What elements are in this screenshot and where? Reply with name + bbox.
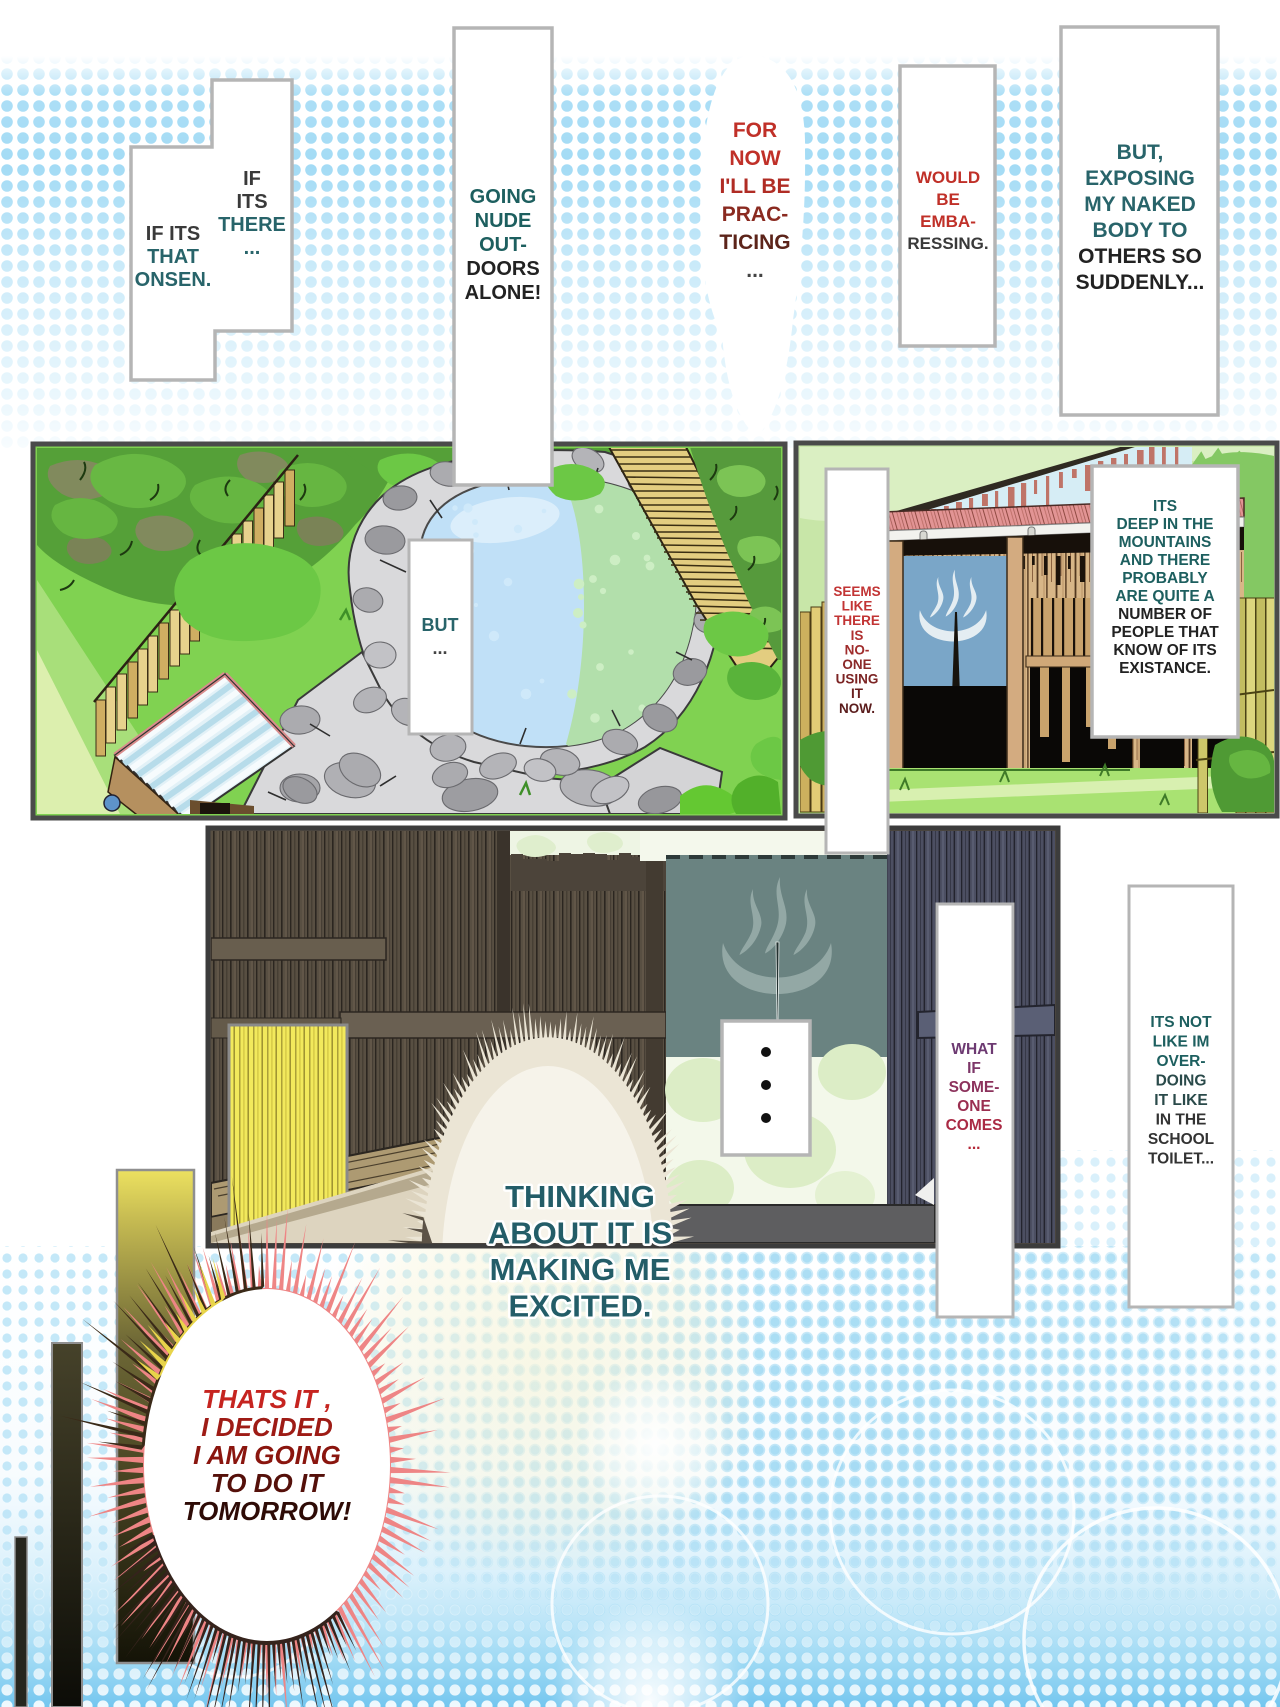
svg-text:LIKE IM: LIKE IM: [1153, 1034, 1210, 1051]
svg-text:...: ...: [244, 237, 261, 259]
svg-text:IN THE: IN THE: [1156, 1112, 1207, 1129]
svg-text:...: ...: [746, 259, 764, 282]
svg-text:ALONE!: ALONE!: [465, 282, 542, 304]
svg-text:...: ...: [432, 638, 447, 658]
svg-text:PRAC-: PRAC-: [722, 203, 789, 226]
svg-text:ONE: ONE: [957, 1098, 991, 1115]
svg-text:...: ...: [968, 1136, 981, 1153]
svg-text:TOILET...: TOILET...: [1148, 1151, 1214, 1168]
svg-text:THERE: THERE: [218, 214, 286, 236]
svg-text:BUT: BUT: [422, 615, 459, 635]
svg-text:THATS IT ,: THATS IT ,: [202, 1384, 332, 1414]
svg-text:THINKING: THINKING: [505, 1179, 655, 1214]
svg-text:LIKE: LIKE: [842, 599, 873, 614]
svg-text:WHAT: WHAT: [951, 1041, 997, 1058]
svg-text:NOW: NOW: [729, 147, 781, 170]
svg-text:GOING: GOING: [470, 186, 537, 208]
svg-text:AND THERE: AND THERE: [1120, 552, 1210, 569]
svg-text:PEOPLE THAT: PEOPLE THAT: [1111, 624, 1219, 641]
svg-text:FOR: FOR: [733, 119, 777, 142]
svg-text:IF: IF: [967, 1060, 981, 1077]
svg-text:ARE QUITE A: ARE QUITE A: [1115, 588, 1214, 605]
svg-text:I DECIDED: I DECIDED: [201, 1412, 333, 1442]
svg-text:ITS: ITS: [236, 191, 267, 213]
svg-text:EXCITED.: EXCITED.: [509, 1289, 652, 1324]
svg-text:OVER-: OVER-: [1156, 1053, 1205, 1070]
svg-text:DOORS: DOORS: [466, 258, 539, 280]
svg-text:BE: BE: [936, 190, 960, 209]
svg-text:THERE: THERE: [834, 613, 880, 628]
svg-text:I AM GOING: I AM GOING: [193, 1440, 341, 1470]
svg-text:ABOUT IT IS: ABOUT IT IS: [488, 1216, 672, 1251]
svg-text:IF: IF: [243, 168, 261, 190]
svg-text:OTHERS SO: OTHERS SO: [1078, 245, 1202, 268]
svg-text:IT: IT: [851, 686, 864, 701]
svg-text:BODY TO: BODY TO: [1093, 219, 1188, 242]
svg-text:ONE: ONE: [842, 657, 871, 672]
svg-text:TICING: TICING: [719, 231, 790, 254]
svg-text:COMES: COMES: [946, 1117, 1003, 1134]
svg-text:THAT: THAT: [147, 246, 199, 268]
svg-text:SUDDENLY...: SUDDENLY...: [1076, 271, 1205, 294]
svg-text:TOMORROW!: TOMORROW!: [183, 1496, 352, 1526]
svg-text:EXISTANCE.: EXISTANCE.: [1119, 660, 1211, 677]
svg-text:DOING: DOING: [1156, 1073, 1207, 1090]
svg-text:OUT-: OUT-: [479, 234, 527, 256]
svg-text:DEEP IN THE: DEEP IN THE: [1116, 516, 1213, 533]
svg-text:RESSING.: RESSING.: [907, 234, 988, 253]
svg-text:EMBA-: EMBA-: [920, 212, 976, 231]
svg-text:BUT,: BUT,: [1117, 141, 1164, 164]
svg-text:SCHOOL: SCHOOL: [1148, 1131, 1214, 1148]
svg-text:NO-: NO-: [845, 642, 870, 657]
svg-text:NUMBER OF: NUMBER OF: [1118, 606, 1212, 623]
svg-text:USING: USING: [836, 672, 879, 687]
svg-text:IF ITS: IF ITS: [146, 223, 200, 245]
svg-text:I'LL BE: I'LL BE: [719, 175, 790, 198]
svg-text:ITS: ITS: [1153, 498, 1177, 515]
svg-text:KNOW OF ITS: KNOW OF ITS: [1113, 642, 1216, 659]
svg-text:NUDE: NUDE: [475, 210, 532, 232]
svg-text:MAKING ME: MAKING ME: [490, 1252, 671, 1287]
svg-text:PROBABLY: PROBABLY: [1122, 570, 1208, 587]
svg-text:ONSEN.: ONSEN.: [135, 269, 212, 291]
svg-text:SEEMS: SEEMS: [833, 584, 880, 599]
svg-text:NOW.: NOW.: [839, 701, 875, 716]
svg-text:EXPOSING: EXPOSING: [1085, 167, 1195, 190]
svg-text:IT LIKE: IT LIKE: [1154, 1092, 1207, 1109]
svg-text:ITS NOT: ITS NOT: [1150, 1014, 1212, 1031]
svg-text:IS: IS: [851, 628, 864, 643]
svg-text:MY NAKED: MY NAKED: [1084, 193, 1196, 216]
svg-text:TO DO IT: TO DO IT: [211, 1468, 325, 1498]
svg-text:SOME-: SOME-: [949, 1079, 1000, 1096]
svg-text:MOUNTAINS: MOUNTAINS: [1119, 534, 1212, 551]
svg-text:WOULD: WOULD: [916, 168, 980, 187]
